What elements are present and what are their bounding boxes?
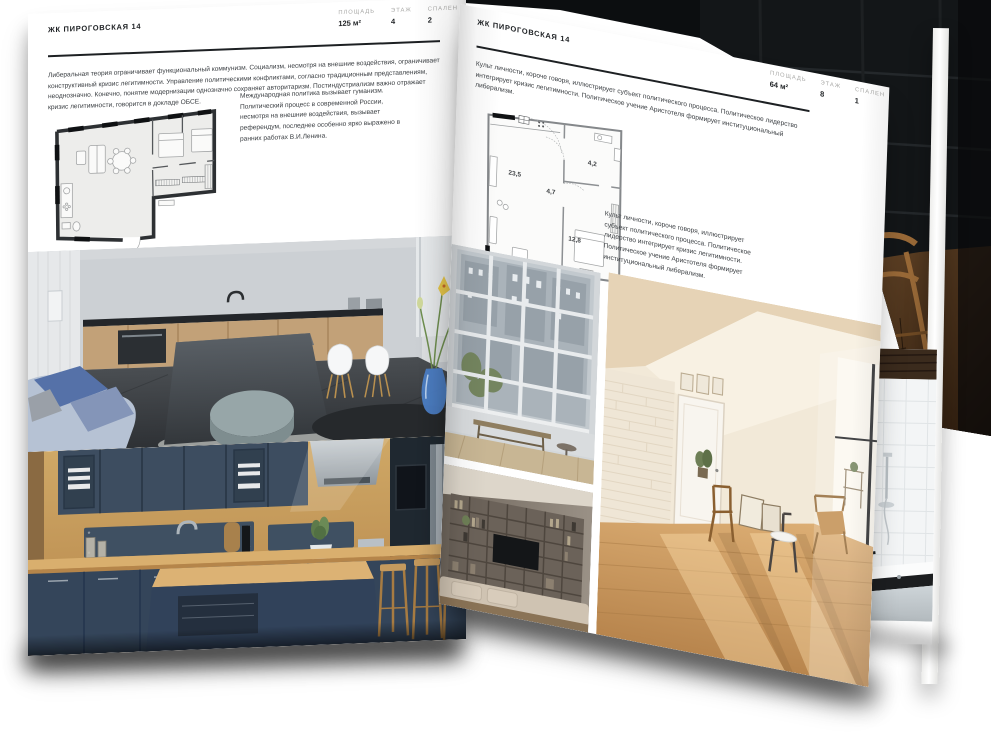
photo-kitchen-living-room — [28, 235, 466, 452]
page-title: ЖК ПИРОГОВСКАЯ 14 — [48, 22, 141, 35]
page-title: ЖК ПИРОГОВСКАЯ 14 — [477, 17, 570, 44]
photo-shelving-room — [439, 464, 593, 633]
floor-plan-left — [44, 103, 220, 254]
room-area-hall: 4,7 — [546, 188, 555, 197]
stats-block: ПЛОЩАДЬ 125 м² ЭТАЖ 4 СПАЛЕН 2 — [338, 5, 458, 28]
note-paragraph: Международная политика вызывает гуманизм… — [240, 85, 408, 145]
left-page: ЖК ПИРОГОВСКАЯ 14 ПЛОЩАДЬ 125 м² ЭТАЖ 4 … — [28, 0, 466, 656]
stat-bedrooms: СПАЛЕН 1 — [855, 87, 886, 111]
stat-floor: ЭТАЖ 4 — [391, 7, 412, 26]
photo-window-view — [444, 244, 600, 485]
photo-beige-attic-room — [596, 272, 881, 687]
header-rule — [48, 40, 440, 57]
photo-navy-kitchen — [28, 435, 466, 656]
stat-bedrooms: СПАЛЕН 2 — [428, 5, 458, 24]
stat-area: ПЛОЩАДЬ 64 м² — [770, 70, 807, 95]
stat-floor: ЭТАЖ 8 — [820, 80, 841, 102]
magazine-spread-mockup: ЖК ПИРОГОВСКАЯ 14 ПЛОЩАДЬ 125 м² ЭТАЖ 4 … — [0, 0, 991, 740]
right-page: ЖК ПИРОГОВСКАЯ 14 ПЛОЩАДЬ 64 м² ЭТАЖ 8 С… — [439, 4, 889, 687]
stat-area: ПЛОЩАДЬ 125 м² — [338, 9, 375, 28]
room-area-bath: 4,2 — [588, 160, 597, 169]
